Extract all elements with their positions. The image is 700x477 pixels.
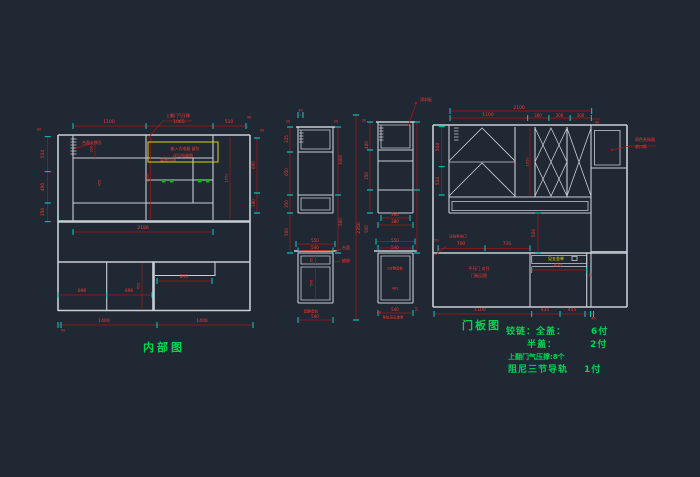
dim-label: 550: [391, 239, 399, 243]
note-half-cover-label: 半盖：: [527, 337, 557, 350]
dim-label: 514: [436, 177, 441, 186]
dim-label: 90: [37, 128, 41, 132]
dim-label: 360: [391, 213, 399, 217]
dim-label: 40: [595, 121, 599, 125]
dim-label: 1100: [482, 113, 493, 118]
dim-label: 735: [503, 242, 512, 247]
dim-label: 350: [365, 172, 369, 180]
dim-label: 10: [415, 307, 419, 311]
dim-label: 455: [568, 308, 577, 313]
dim-label: 870: [554, 264, 563, 269]
dim-label: 40: [377, 311, 381, 315]
dim-label: 1100: [474, 308, 485, 313]
dim-label: 1650: [225, 174, 229, 183]
note-half-qty: 2付: [590, 337, 607, 350]
dim-label: 600: [252, 161, 256, 169]
dim-label: 500: [365, 225, 369, 233]
dim-label: 50: [61, 329, 65, 333]
cad-drawing-canvas: 1100106551040205144903509060018021866966…: [0, 0, 700, 477]
note-rail-qty: 1付: [584, 362, 601, 375]
dim-label: 300: [534, 114, 542, 118]
dim-label: 350: [42, 208, 47, 217]
dim-label: 详见电器图: [173, 154, 193, 158]
dim-label: 696: [78, 289, 87, 294]
dim-label: 300: [556, 114, 564, 118]
dim-label: 500: [533, 229, 538, 238]
dim-label: 2186: [137, 226, 148, 231]
dim-label: 1400: [196, 319, 207, 324]
dim-label: 514: [42, 150, 47, 159]
dim-label: 1650: [146, 174, 150, 183]
dim-label: 上翻门气压撑: [166, 114, 190, 118]
dim-label: 481: [392, 287, 399, 291]
dim-label: 平开门 对开: [468, 267, 489, 271]
dim-label: 95: [310, 258, 314, 262]
dim-label: 325: [285, 135, 289, 143]
dim-label: 40: [247, 116, 251, 120]
dim-label: 1400: [98, 319, 109, 324]
dim-label: 180: [252, 199, 256, 207]
dim-label: 抽屉: [342, 259, 350, 263]
dim-label: 540: [311, 246, 319, 250]
dim-label: 收口条: [635, 145, 647, 149]
right-view-title: 门板图: [462, 317, 501, 333]
dim-label: 380: [391, 220, 399, 224]
dim-label: 1000: [339, 155, 343, 165]
dim-label: 504: [436, 143, 441, 152]
dim-label: 嵌入式电器 留位: [170, 147, 199, 151]
dim-label: 300: [577, 114, 585, 118]
dim-label: 550: [311, 239, 319, 243]
dim-label: 20: [260, 129, 264, 133]
dim-label: 20: [334, 120, 338, 124]
dim-label: 1100: [103, 121, 114, 126]
dim-label: 510: [225, 121, 234, 126]
dim-label: 500: [285, 228, 289, 236]
dim-label: 台面走线孔: [82, 141, 102, 145]
dim-label: 840: [180, 275, 189, 280]
dim-label: 门板见图: [471, 274, 487, 278]
left-view-title: 内部图: [143, 339, 185, 355]
dim-label: 同色系饰面: [635, 138, 655, 142]
dim-label: 350: [285, 200, 289, 208]
dim-label: 540: [391, 308, 399, 312]
dim-label: 435: [541, 308, 550, 313]
dim-label: 层板可调: [160, 158, 176, 162]
dim-label: 500: [310, 280, 314, 287]
dim-label: 650: [285, 168, 289, 176]
dim-label: 540: [391, 246, 399, 250]
dim-label: 40: [298, 109, 302, 113]
dim-label: 配静音轨: [304, 310, 318, 314]
note-gas-strut: 上翻门气压撑:8个: [508, 352, 565, 362]
dim-label: 见五金单: [548, 257, 564, 261]
dim-label: 40: [589, 273, 593, 277]
dim-label: 30: [286, 120, 290, 124]
note-full-qty: 6付: [591, 324, 608, 337]
dim-label: 45: [591, 317, 595, 321]
dim-label: 1付静音轨: [387, 267, 403, 271]
dim-label: 1050: [526, 158, 530, 167]
dim-label: 696: [125, 289, 134, 294]
dim-label: 顶封板: [420, 98, 432, 102]
dim-label: 450: [137, 283, 141, 290]
dim-label: 480: [365, 141, 369, 149]
dim-label: 2350: [357, 222, 362, 233]
dim-label: 500: [339, 218, 343, 226]
note-hinge-full-label: 铰链：全盖：: [506, 324, 566, 337]
dim-label: 350: [90, 146, 94, 153]
dim-label: 30: [362, 119, 366, 123]
dim-label: 540: [311, 315, 319, 319]
dim-label: 700: [457, 242, 466, 247]
dim-label: 1065: [173, 121, 184, 126]
dim-label: 台面: [342, 246, 350, 250]
dim-label: 490: [42, 183, 47, 192]
dim-label: 导轨见五金单: [383, 316, 404, 320]
dim-label: 450: [98, 180, 102, 187]
dim-label: 压线条收口: [449, 235, 467, 239]
dim-label: 50: [434, 239, 438, 243]
dim-label: 2100: [513, 106, 524, 111]
note-rail-label: 阻尼三节导轨: [508, 362, 568, 375]
dimension-labels-layer: 1100106551040205144903509060018021866966…: [0, 0, 700, 477]
